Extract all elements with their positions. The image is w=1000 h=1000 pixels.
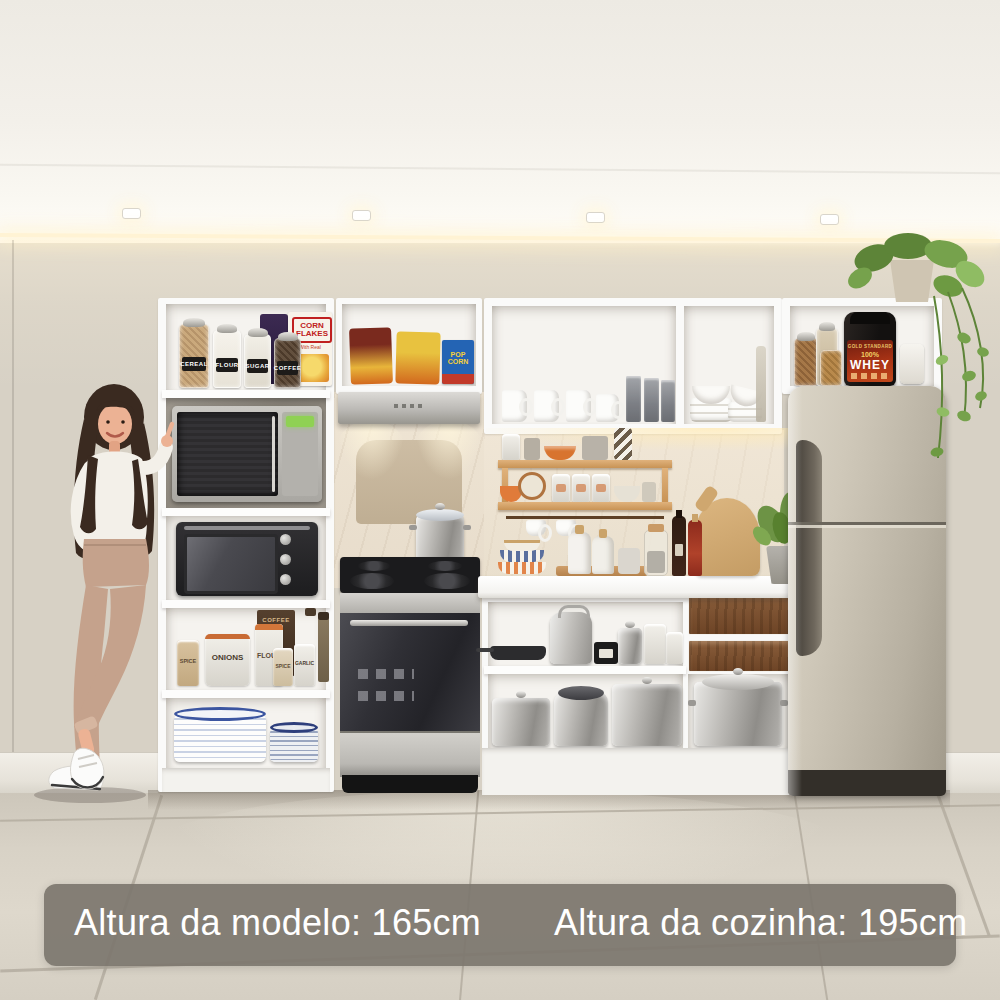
shelf-support: [662, 468, 668, 502]
sauce-bottle-red: [688, 520, 702, 576]
jar-label: CEREAL: [182, 357, 206, 371]
snack-bag: [349, 327, 393, 384]
baseboard-right: [946, 752, 1000, 793]
oven-knob: [280, 574, 291, 585]
ceiling: [0, 0, 1000, 243]
coffee-jar: COFFEE: [274, 338, 301, 388]
burner: [350, 573, 394, 589]
hood-light-cone: [336, 420, 406, 480]
tin-rim: [205, 634, 250, 639]
onions-label: ONIONS: [205, 652, 250, 662]
drinking-glass: [661, 380, 675, 422]
pot-handle: [409, 525, 417, 530]
patterned-bowl: [500, 550, 544, 562]
microwave-keypad: [286, 432, 314, 492]
bottle-cap: [318, 612, 329, 620]
small-jar: [642, 482, 656, 502]
microwave-controls: [282, 412, 318, 496]
pot-lid: [416, 509, 464, 521]
storage-drawer: [340, 731, 480, 777]
range-hood: [338, 392, 480, 424]
oven-door-handle: [350, 620, 468, 626]
plate-stack-small: [270, 728, 318, 762]
shelf-plank-top: [498, 460, 672, 468]
decor-plate: [518, 472, 546, 500]
mug: [566, 390, 591, 422]
bottle-cap: [692, 514, 698, 522]
microwave-niche: [166, 398, 326, 508]
small-pot: [618, 628, 642, 664]
jar-label: COFFEE: [277, 361, 298, 375]
frying-pan: [490, 646, 546, 660]
orange-bowl: [544, 446, 576, 460]
counter-canister: [666, 632, 683, 664]
wood-wall-shelf: [498, 424, 672, 540]
white-canister: [552, 474, 570, 502]
stock-pot-large: [694, 682, 782, 746]
hood-upper-shelf: POP CORN: [336, 298, 482, 394]
black-jar-label: [599, 649, 613, 658]
model-woman: [18, 375, 190, 805]
shelf-jar: [524, 438, 540, 460]
upper-cabinet-right: [684, 306, 774, 424]
jar-label: FLOUR: [216, 358, 238, 372]
microwave-handle: [272, 416, 275, 492]
cork-cap: [599, 529, 607, 538]
jar-lid: [797, 332, 815, 341]
kitchen-product-photo: CORN FLAKES With Real Strawberry CEREAL …: [0, 0, 1000, 1000]
pot-lid-knob: [625, 621, 635, 628]
freezer-door-seam-light: [788, 525, 946, 528]
jar-lid: [248, 328, 268, 337]
bottle: [756, 346, 766, 422]
burner: [424, 573, 470, 589]
cork-cap: [575, 525, 584, 534]
recessed-light: [586, 212, 605, 223]
sugar-jar: SUGAR: [244, 334, 271, 388]
large-pot: [612, 684, 682, 746]
upper-cabinet-left: [492, 306, 676, 424]
oil-bottle: [318, 616, 329, 682]
counter-canister: [644, 624, 666, 664]
cooktop: [340, 557, 480, 593]
counter-shelf-bottom: [488, 674, 683, 748]
canister-mark: [556, 484, 566, 492]
snack-shelf: POP CORN: [342, 304, 476, 386]
pot-handle: [688, 700, 696, 706]
gray-canister: [582, 436, 608, 460]
jar-contents: [647, 551, 665, 573]
upper-cabinet: [484, 298, 782, 434]
burner: [428, 561, 462, 571]
garlic-label: GARLIC: [294, 659, 315, 667]
plate-top-rim: [270, 722, 318, 733]
model-height-label: Altura da modelo: 165cm: [74, 902, 481, 944]
counter-plinth: [482, 748, 792, 795]
wood-drawer: [688, 593, 790, 635]
hanging-plant: [830, 230, 1000, 480]
jar-lid: [217, 324, 238, 333]
snack-bag: [395, 331, 440, 384]
shelf-plank-bottom: [498, 502, 672, 510]
pantry-shelf: COFFEE FLOUR ONIONS SPICE SPICE GARLIC: [166, 608, 326, 690]
pot-handle: [463, 525, 471, 530]
dark-dome-lid: [558, 686, 604, 700]
oil-cruet: [592, 536, 614, 574]
mug-rail: [506, 516, 664, 519]
glass-storage-jar: [644, 530, 668, 576]
stove: [340, 505, 480, 795]
height-info-banner: Altura da modelo: 165cm Altura da cozinh…: [44, 884, 956, 966]
mug: [596, 394, 619, 422]
chevron-vase: [614, 428, 632, 460]
white-canister: [572, 474, 590, 502]
grain-jar: [794, 338, 818, 386]
bottle-cap: [676, 510, 682, 518]
black-jar: [594, 642, 618, 664]
canister-lid: [255, 624, 283, 630]
bowl: [614, 486, 640, 502]
counter-right-alcove: [688, 674, 788, 748]
patterned-bowl-stack: [496, 540, 548, 576]
oil-cruet: [568, 532, 591, 574]
electric-kettle: [550, 612, 592, 664]
oven-window: [184, 534, 278, 594]
counter-cabinet: [482, 576, 792, 795]
oven-knob: [280, 534, 291, 545]
tray-jar: [618, 548, 640, 574]
recessed-light: [820, 214, 839, 225]
pot-lid-knob: [435, 503, 445, 510]
sauce-bottle-dark: [672, 516, 686, 576]
mug: [502, 390, 527, 422]
pot-lid-knob: [516, 691, 526, 698]
canister-mark: [596, 484, 606, 492]
large-pot: [492, 698, 550, 746]
microwave-display: [286, 416, 314, 427]
jar-lid: [183, 318, 205, 327]
canister-mark: [576, 484, 586, 492]
white-canister: [592, 474, 610, 502]
bowl: [692, 386, 730, 404]
oven-knob: [280, 554, 291, 565]
plates-shelf: [166, 698, 326, 768]
microwave-door: [177, 412, 278, 496]
recessed-light: [352, 210, 371, 221]
garlic-jar: GARLIC: [294, 644, 315, 686]
popcorn-label: POP CORN: [442, 350, 474, 366]
fridge-base: [788, 770, 946, 796]
countertop: [478, 576, 796, 598]
spice-label: SPICE: [273, 662, 293, 670]
drinking-glass: [626, 376, 641, 422]
large-pot: [554, 692, 608, 746]
mug: [534, 390, 559, 422]
hood-light-cone: [414, 420, 484, 480]
kettle-handle: [558, 605, 590, 618]
oven-door: [340, 613, 480, 731]
bottle-cap: [305, 608, 316, 616]
oven-niche: [166, 516, 326, 600]
microwave: [172, 406, 322, 502]
patterned-bowl: [498, 562, 546, 574]
top-shelf: CORN FLAKES With Real Strawberry CEREAL …: [166, 304, 326, 390]
shelf-board: [484, 666, 686, 674]
vent-slits: [358, 691, 414, 701]
wall-corner-line: [12, 240, 14, 760]
flour-jar: FLOUR: [213, 330, 241, 388]
oven-top-trim: [184, 526, 310, 530]
stove-control-band: [340, 593, 480, 613]
drinking-glass: [644, 378, 659, 422]
cork-lid: [648, 524, 664, 532]
bowl-stack: [690, 398, 732, 422]
burner: [358, 561, 390, 571]
fridge-edge-highlight: [788, 386, 802, 796]
popcorn-box: POP CORN: [442, 340, 474, 384]
spice-jar-2: SPICE: [273, 648, 293, 686]
shelf-jar: [502, 434, 520, 460]
pot-lid: [702, 674, 774, 690]
hood-buttons: [394, 404, 424, 408]
vent-slits: [358, 669, 414, 679]
recessed-light: [122, 208, 141, 219]
pot-handle: [780, 700, 788, 706]
jar-lid: [278, 332, 298, 341]
pan-handle: [476, 648, 494, 652]
pot-lid-knob: [642, 677, 652, 684]
bottle-label: [675, 544, 683, 556]
pot-lid-knob: [733, 668, 743, 675]
jar-label: SUGAR: [247, 359, 268, 373]
coffee-box-label: COFFEE: [257, 616, 295, 624]
toaster-oven: [176, 522, 318, 596]
popcorn-box-stripe: [442, 374, 474, 384]
stock-pot: [416, 515, 464, 561]
patterned-bowl: [504, 540, 540, 551]
counter-shelf-top: [488, 602, 683, 666]
onions-tin: ONIONS: [205, 634, 250, 686]
hanging-mug: [526, 520, 546, 536]
stove-base: [342, 775, 478, 793]
kitchen-height-label: Altura da cozinha: 195cm: [554, 902, 967, 944]
